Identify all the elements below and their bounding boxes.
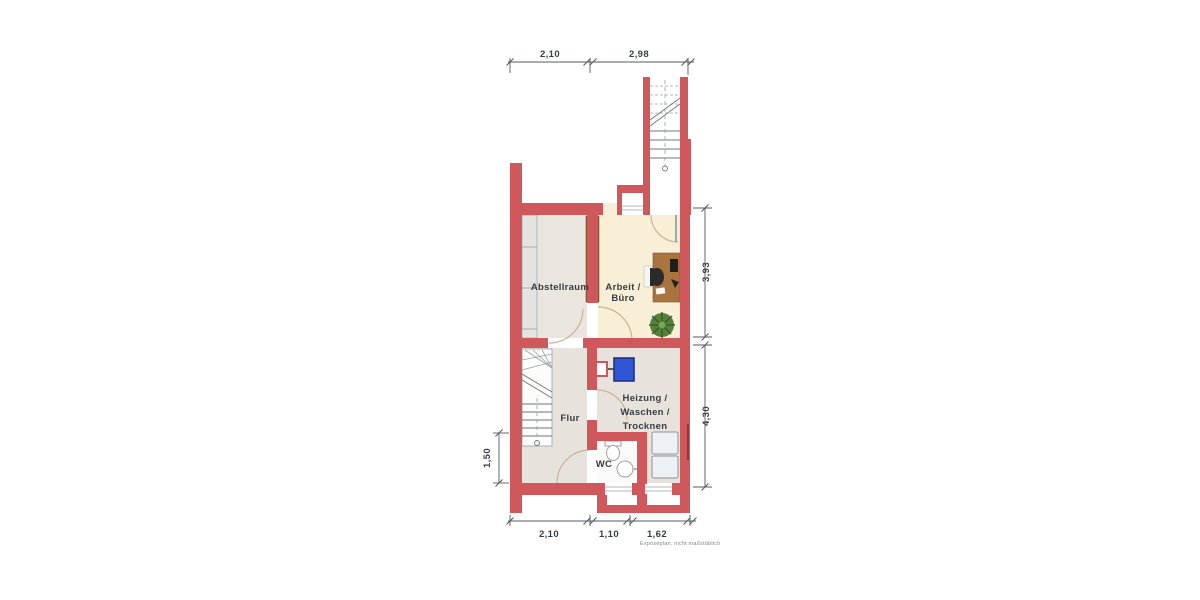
dim-value-top-2: 2,98	[629, 49, 649, 60]
wall-porch-bottom	[597, 505, 690, 513]
dim-value-left-1: 1,50	[482, 448, 493, 468]
boiler	[614, 358, 634, 381]
dimension-top: 2,10 2,98	[507, 49, 695, 75]
dim-value-bottom-3: 1,62	[647, 529, 667, 540]
office-chair-back	[650, 268, 654, 286]
wall-stair-right-lower	[680, 139, 691, 215]
room-label-wc: WC	[596, 459, 612, 470]
window-buero	[622, 193, 643, 215]
room-label-heizung-line2: Waschen /	[620, 407, 669, 418]
wall-wc-left	[587, 432, 597, 450]
plant-center	[659, 322, 666, 329]
dimension-bottom: 2,10 1,10 1,62 Exposéplan, nicht maßstäb…	[507, 515, 721, 547]
room-label-buero-line2: Büro	[611, 293, 634, 304]
dim-value-right-1: 3,93	[701, 262, 712, 282]
wall-flur-heizung-a	[587, 348, 597, 390]
floor-heizung	[597, 348, 680, 432]
wall-south-a	[510, 483, 605, 495]
plan-footnote: Exposéplan, nicht maßstäblich	[640, 541, 720, 547]
dimension-right: 3,93 4,30	[693, 205, 712, 491]
staircase-lower	[522, 349, 552, 446]
window-wc	[605, 484, 632, 494]
wall-south-c	[672, 483, 690, 495]
dim-value-bottom-2: 1,10	[599, 529, 619, 540]
dim-value-top-1: 2,10	[540, 49, 560, 60]
dim-value-bottom-1: 2,10	[539, 529, 559, 540]
sink	[617, 461, 633, 477]
wall-stair-right-upper	[680, 77, 688, 139]
wall-stair-left	[643, 77, 650, 215]
room-label-abstellraum: Abstellraum	[531, 282, 589, 293]
floorplan-drawing: Abstellraum Arbeit / Büro Flur Heizung /…	[0, 0, 1200, 600]
room-label-buero-line1: Arbeit /	[605, 282, 640, 293]
room-label-flur: Flur	[560, 413, 579, 424]
washer	[652, 432, 678, 454]
wall-south-b	[632, 483, 645, 495]
wall-abstell-bottom	[510, 338, 548, 348]
wall-buero-heizung	[583, 338, 690, 348]
closet	[522, 215, 537, 338]
dryer	[652, 456, 678, 478]
desk-paper	[656, 287, 666, 294]
staircase-upper	[650, 77, 680, 172]
window-heizung	[645, 484, 672, 494]
floorplan-page: Abstellraum Arbeit / Büro Flur Heizung /…	[0, 0, 1200, 600]
wall-meter-box	[596, 362, 607, 376]
monitor	[670, 259, 678, 272]
room-label-heizung-line1: Heizung /	[623, 393, 668, 404]
wall-watermark-text	[687, 424, 689, 460]
closet-body	[522, 215, 537, 338]
wall-window-bay-left	[617, 185, 622, 215]
dimension-left: 1,50	[482, 430, 509, 487]
room-label-heizung-line3: Trocknen	[623, 421, 668, 432]
dim-value-right-2: 4,30	[701, 406, 712, 426]
